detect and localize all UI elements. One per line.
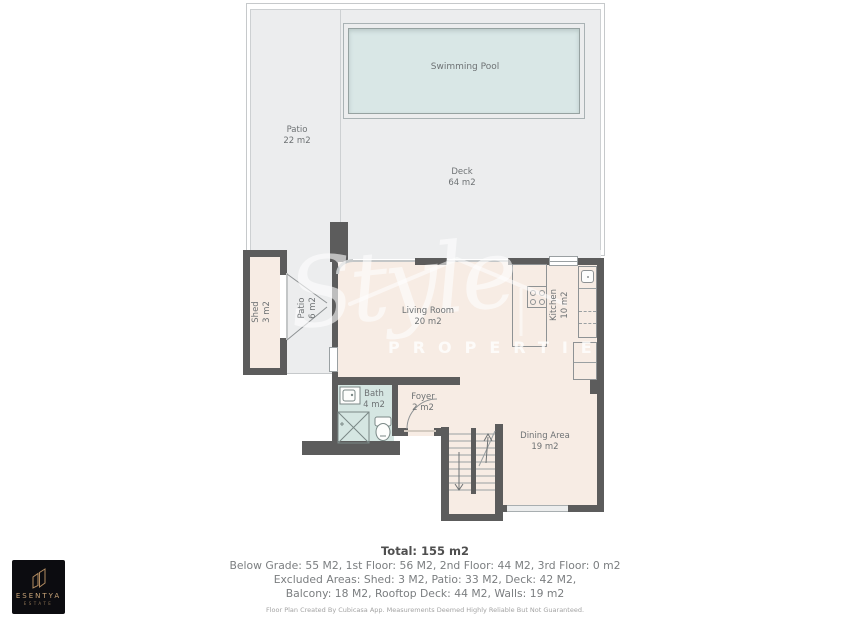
disclaimer: Floor Plan Created By Cubicasa App. Meas… (0, 606, 850, 614)
living-area: 20 m2 (402, 317, 454, 328)
shed-door-opening (286, 273, 288, 340)
wall-segment (441, 427, 449, 521)
label-dining: Dining Area 19 m2 (520, 431, 570, 453)
kitchen-counter-icon (578, 266, 597, 338)
patio-main-area: 22 m2 (283, 136, 310, 147)
label-patio-main: Patio 22 m2 (283, 125, 310, 147)
patio-small-area: 6 m2 (308, 297, 319, 319)
wall-segment (243, 250, 250, 375)
wall-segment (568, 505, 603, 512)
counter-divider (579, 288, 596, 289)
wall-segment (332, 377, 460, 385)
total-area: Total: 155 m2 (0, 544, 850, 559)
wall-segment (330, 222, 348, 262)
burner-icon (539, 290, 545, 296)
stove-icon (527, 286, 547, 308)
wall-segment (415, 258, 447, 265)
window (329, 347, 338, 372)
bath-name: Bath (363, 389, 385, 400)
kitchen-name: Kitchen (549, 289, 560, 321)
wall-segment (597, 258, 604, 512)
wall-segment (332, 385, 338, 445)
shed-name: Shed (251, 301, 262, 323)
label-kitchen: Kitchen 10 m2 (549, 289, 571, 321)
fridge-icon (573, 342, 597, 380)
dining-name: Dining Area (520, 431, 570, 442)
kitchen-area: 10 m2 (560, 289, 571, 321)
wall-segment (441, 514, 503, 521)
wall-segment (302, 441, 400, 455)
deck-area: 64 m2 (448, 178, 475, 189)
label-deck: Deck 64 m2 (448, 167, 475, 189)
foyer-name: Foyer (411, 392, 435, 403)
agency-logo: ESENTYA ESTATE (12, 560, 65, 614)
label-living: Living Room 20 m2 (402, 306, 454, 328)
logo-tagline: ESTATE (24, 601, 54, 606)
excluded-line-2: Balcony: 18 M2, Rooftop Deck: 44 M2, Wal… (0, 587, 850, 601)
shed-area: 3 m2 (262, 301, 273, 323)
living-name: Living Room (402, 306, 454, 317)
upper-cabinet-dash (579, 323, 596, 324)
label-swimming-pool: Swimming Pool (431, 62, 500, 74)
patio-deck-divider (340, 9, 341, 222)
excluded-line-1: Excluded Areas: Shed: 3 M2, Patio: 33 M2… (0, 573, 850, 587)
wall-segment (280, 250, 287, 275)
area-summary: Total: 155 m2 Below Grade: 55 M2, 1st Fl… (0, 544, 850, 614)
foyer-area: 2 m2 (411, 403, 435, 414)
floor-plan-page: Style PROPERTIES Swimming Pool Patio 22 … (0, 0, 850, 620)
room-living-kitchen (338, 262, 597, 385)
window-mullion (550, 261, 577, 262)
wall-segment (332, 262, 338, 347)
foyer-door-opening (404, 430, 436, 432)
kitchen-sink-icon (581, 270, 594, 283)
patio-small-name: Patio (297, 297, 308, 319)
label-foyer: Foyer 2 m2 (411, 392, 435, 414)
upper-cabinet-dash (579, 311, 596, 312)
pool-label: Swimming Pool (431, 62, 500, 72)
label-shed: Shed 3 m2 (251, 301, 273, 323)
burner-icon (539, 299, 545, 305)
sliding-door (507, 505, 568, 512)
dining-area: 19 m2 (520, 442, 570, 453)
burner-icon (530, 299, 536, 305)
label-bath: Bath 4 m2 (363, 389, 385, 411)
wall-segment (590, 380, 597, 394)
window (549, 256, 578, 266)
wall-segment (280, 338, 287, 375)
buildings-icon (29, 568, 49, 590)
deck-name: Deck (448, 167, 475, 178)
exterior-notch (398, 436, 441, 506)
wall-segment (471, 428, 476, 494)
floors-line: Below Grade: 55 M2, 1st Floor: 56 M2, 2n… (0, 559, 850, 573)
burner-icon (530, 290, 536, 296)
patio-main-name: Patio (283, 125, 310, 136)
label-patio-small: Patio 6 m2 (297, 297, 319, 319)
logo-name: ESENTYA (16, 592, 61, 600)
bath-area: 4 m2 (363, 400, 385, 411)
